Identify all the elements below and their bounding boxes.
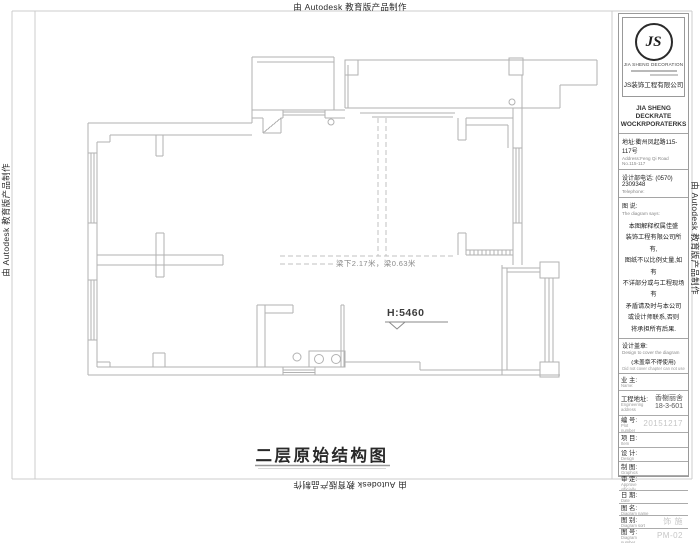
stamp-label-en: Design to cover the diagram (622, 350, 685, 355)
row-item: 项 目: Item (619, 433, 688, 448)
notes-section: 图 说: The diagram says: 本图解释权属佳盛 装饰工程有限公司… (619, 198, 688, 339)
company-name-cn: JS装饰工程有限公司 (623, 79, 684, 89)
phone-cn: 设计部电话: (0570) 2309348 (622, 173, 685, 188)
stamp-section: 设计盖章: Design to cover the diagram (未盖章不得… (619, 339, 688, 374)
row-project-address: 工程地址: Engineering address 香榭丽舍 18-3-601 (619, 391, 688, 416)
notes-title-cn: 图 说: (622, 201, 685, 210)
company-logo-icon: JS (635, 23, 673, 61)
sheet-frame-lines (12, 11, 692, 479)
dashed-beam-lines (280, 118, 455, 264)
address-en: Address:Feng Qi Road No.115-117 (622, 156, 685, 166)
row-diagram-number: 图 号: Diagram number PM-02 (619, 529, 688, 543)
title-block: JS JIA SHENG DECORATION JS装饰工程有限公司 JIA S… (618, 13, 689, 477)
serial-number-value: 20151217 (643, 420, 686, 429)
row-owner: 业 主: Name: (619, 374, 688, 391)
phone-en: Telephone: (622, 189, 685, 194)
row-design: 设 计: Design (619, 448, 688, 462)
address-section: 地址:衢州凤起路115-117号 Address:Feng Qi Road No… (619, 134, 688, 170)
elevation-marker (385, 322, 448, 329)
ceiling-height-label: H:5460 (387, 307, 424, 319)
drawing-sheet: { "watermark": "由 Autodesk 教育版产品制作", "pl… (0, 0, 700, 492)
wall-lines (88, 57, 597, 377)
row-drafting: 制 图: Graphics (619, 462, 688, 476)
autodesk-watermark-left: 由 Autodesk 教育版产品制作 (0, 163, 12, 277)
logo-caption: JIA SHENG DECORATION (623, 62, 684, 67)
row-date: 日 期: Date (619, 491, 688, 504)
logo-tagline-line2 (650, 74, 678, 76)
phone-section: 设计部电话: (0570) 2309348 Telephone: (619, 170, 688, 198)
row-serial-number: 编 号: Plot number 20151217 (619, 416, 688, 433)
autodesk-watermark-bottom: 由 Autodesk 教育版产品制作 (293, 479, 407, 491)
stamp-label-cn: 设计盖章: (622, 341, 685, 350)
autodesk-watermark-top: 由 Autodesk 教育版产品制作 (293, 1, 407, 13)
floor-plan-drawing (0, 0, 700, 492)
diagram-number-value: PM-02 (657, 532, 686, 541)
notes-title-en: The diagram says: (622, 211, 685, 216)
row-diagram-name: 图 名: Diagram name (619, 504, 688, 516)
address-cn: 地址:衢州凤起路115-117号 (622, 137, 685, 155)
autodesk-watermark-right: 由 Autodesk 教育版产品制作 (689, 181, 700, 295)
diagram-sort-value: 饰 施 (663, 518, 686, 527)
drawing-title: 二层原始结构图 (256, 442, 389, 466)
stamp-warning-cn: (未盖章不得使用) (622, 357, 685, 366)
row-approval: 审 定: Approve officially (619, 476, 688, 491)
logo-tagline-line1 (631, 70, 677, 72)
beam-note-label: 梁下2.17米，梁0.63米 (336, 258, 416, 269)
company-logo-box: JS JIA SHENG DECORATION JS装饰工程有限公司 (622, 17, 685, 97)
company-name-en: JIA SHENG DECKRATE WOCKRPORATERKS (619, 100, 688, 134)
stamp-warning-en: Did not cover chapter can not use (622, 366, 685, 371)
row-diagram-sort: 图 别: Diagram sort 饰 施 (619, 516, 688, 529)
project-address-value: 香榭丽舍 18-3-601 (655, 395, 686, 412)
logo-monogram: JS (646, 34, 662, 51)
notes-body: 本图解释权属佳盛 装饰工程有限公司所有, 图纸不以比例丈量,如有 不详部分或与工… (622, 221, 685, 335)
fixture-circles (293, 99, 515, 367)
